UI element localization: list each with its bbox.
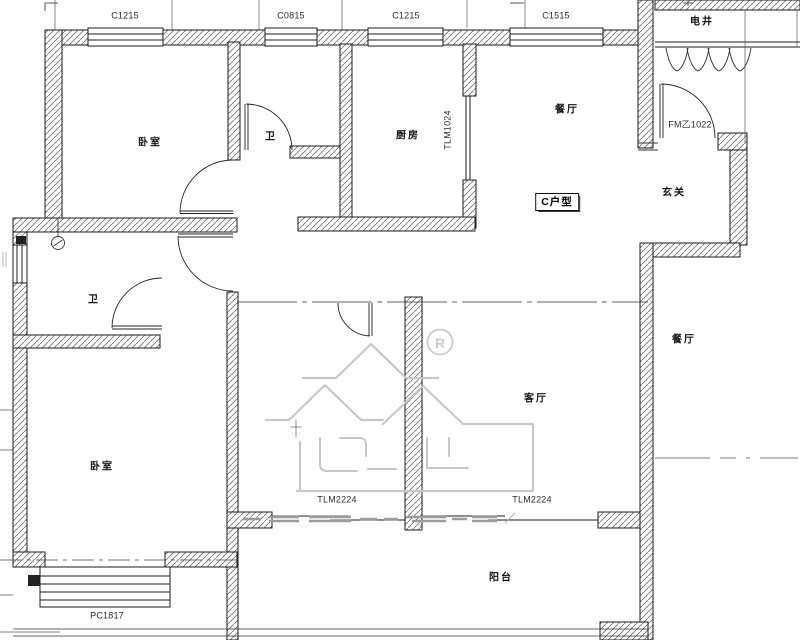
wall-segment — [463, 44, 476, 96]
wall-segment — [718, 133, 747, 150]
door-hall — [178, 234, 233, 291]
room-label-bath-middle: 卫 — [88, 295, 100, 306]
door-label-fm1022-entry: FM乙1022 — [668, 121, 711, 130]
room-label-balcony: 阳台 — [489, 573, 513, 584]
door-bath-middle — [112, 278, 162, 329]
window-dining — [510, 28, 603, 46]
unit-type-badge: C户型 — [535, 193, 579, 211]
wall-segment — [598, 512, 640, 528]
kitchen-sliding-door — [463, 96, 476, 180]
column-solid — [28, 575, 41, 586]
door-bedroom-top — [180, 160, 233, 214]
window-label-pc1817-bay: PC1817 — [90, 612, 124, 621]
room-label-dining-neighbor: 餐厅 — [672, 335, 696, 346]
wall-segment — [165, 552, 237, 567]
wall-segment — [290, 146, 340, 158]
door-living — [338, 303, 372, 336]
window-bath-middle — [13, 245, 27, 283]
wall-segment — [13, 335, 160, 348]
door-label-tlm1024-kitchen: TLM1024 — [444, 110, 453, 149]
wall-segment — [640, 243, 653, 640]
registered-trademark-icon: R — [435, 336, 445, 350]
column-solid — [16, 236, 26, 244]
watermark-small-t — [291, 420, 301, 437]
door-entry — [660, 84, 715, 138]
grid-layer — [0, 0, 798, 636]
window-bedroom-top — [88, 28, 163, 46]
wall-segment — [405, 297, 422, 530]
window-label-c1215-bedroom: C1215 — [111, 12, 139, 21]
bay-window — [40, 567, 170, 607]
wall-segment — [163, 30, 265, 45]
wall-segment — [317, 30, 368, 45]
watermark-roof-left — [266, 385, 383, 420]
room-label-living-room: 客厅 — [524, 394, 548, 405]
room-label-bath-top: 卫 — [265, 132, 277, 143]
wall-segment — [228, 42, 240, 160]
room-label-entry-hall: 玄关 — [662, 188, 686, 199]
door-label-tlm2224-left: TLM2224 — [317, 496, 356, 505]
wall-segment — [13, 552, 45, 567]
floor-plan-drawing — [0, 0, 800, 640]
door-bath-top — [245, 104, 292, 150]
wall-segment — [340, 44, 352, 228]
floor-plan-canvas: C1215 C0815 C1215 C1515 电井 卧室 卫 厨房 餐厅 玄关… — [0, 0, 800, 640]
room-label-electrical-shaft: 电井 — [690, 17, 714, 28]
window-label-c1215-kitchen: C1215 — [392, 12, 420, 21]
wall-segment — [600, 622, 648, 640]
window-label-c0815-bath: C0815 — [277, 12, 305, 21]
door-label-tlm2224-right: TLM2224 — [512, 496, 551, 505]
wall-segment — [298, 217, 475, 231]
wall-segment — [227, 292, 238, 640]
wall-segment — [13, 283, 27, 553]
wall-segment — [650, 243, 740, 257]
room-label-bedroom-top: 卧室 — [138, 138, 162, 149]
watermark-smudge — [243, 513, 515, 523]
room-label-kitchen: 厨房 — [396, 131, 420, 142]
wall-segment — [13, 218, 237, 232]
walls-layer — [13, 0, 800, 640]
room-label-dining: 餐厅 — [555, 105, 579, 116]
window-label-c1515-dining: C1515 — [542, 12, 570, 21]
window-kitchen — [368, 28, 443, 46]
wall-segment — [45, 30, 62, 228]
wall-segment — [638, 0, 653, 148]
room-label-bedroom-bottom: 卧室 — [90, 462, 114, 473]
scallop-break-line — [666, 48, 751, 71]
wall-segment — [655, 0, 800, 10]
window-bath-top — [265, 28, 317, 46]
watermark-logo — [266, 330, 533, 492]
wall-segment — [730, 150, 747, 245]
